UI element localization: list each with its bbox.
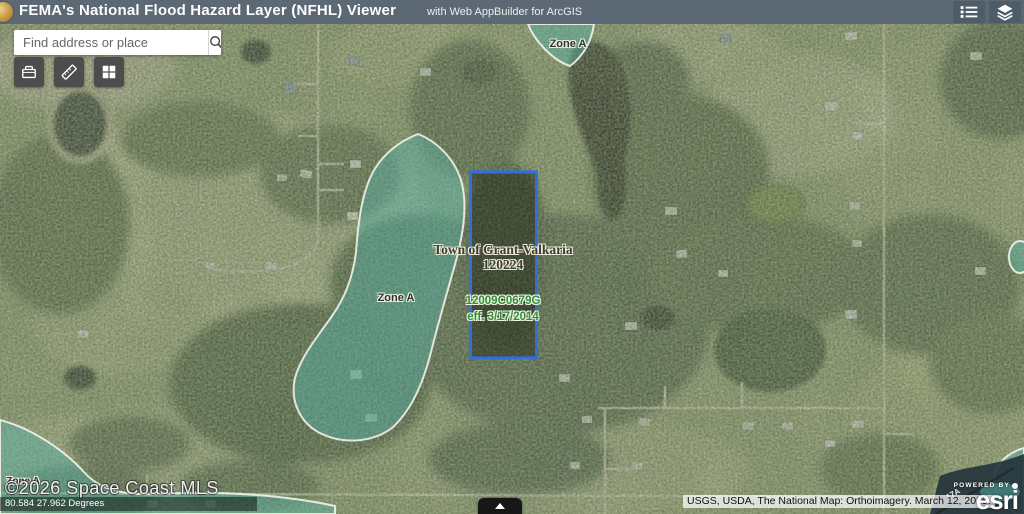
chevron-up-icon <box>495 503 505 509</box>
nfhl-viewer-app: 17A Zone A Zone A Zone A Town of Grant-V… <box>0 0 1024 514</box>
basemap-grid-button[interactable] <box>94 57 124 87</box>
parcel-town-label: Town of Grant-Valkaria 120224 <box>403 242 603 272</box>
page-title: FEMA's National Flood Hazard Layer (NFHL… <box>19 2 396 19</box>
map-attribution: USGS, USDA, The National Map: Orthoimage… <box>683 495 995 508</box>
ruler-icon <box>59 62 79 82</box>
search-icon <box>209 35 221 50</box>
app-logo <box>0 2 13 22</box>
search-button[interactable] <box>208 30 221 55</box>
attribute-table-toggle[interactable] <box>478 498 522 514</box>
town-number: 120224 <box>403 257 603 272</box>
firm-panel-number: 12009C0679G <box>423 295 583 307</box>
mls-watermark: ©2026 Space Coast MLS <box>5 478 219 499</box>
toolbox-icon <box>19 62 39 82</box>
map-toolbar <box>14 57 124 87</box>
esri-brand-text: esri <box>954 489 1018 511</box>
page-subtitle: with Web AppBuilder for ArcGIS <box>427 6 582 18</box>
legend-icon <box>959 4 979 20</box>
town-name: Town of Grant-Valkaria <box>403 242 603 257</box>
firm-effective-date: eff. 3/17/2014 <box>423 311 583 323</box>
legend-button[interactable] <box>953 1 985 23</box>
search-box <box>14 30 221 55</box>
toolbox-button[interactable] <box>14 57 44 87</box>
flood-zone-label-west: Zone A <box>368 292 424 304</box>
layers-button[interactable] <box>989 1 1021 23</box>
app-header: FEMA's National Flood Hazard Layer (NFHL… <box>0 0 1024 24</box>
layers-icon <box>995 3 1015 21</box>
esri-logo: POWERED BY esri <box>954 482 1018 511</box>
measure-button[interactable] <box>54 57 84 87</box>
coordinate-display: 80.584 27.962 Degrees <box>0 497 257 511</box>
map-canvas[interactable]: 17A Zone A Zone A Zone A Town of Grant-V… <box>0 24 1024 514</box>
search-input[interactable] <box>14 30 208 55</box>
flood-zone-label-top: Zone A <box>540 38 596 50</box>
grid-icon <box>99 62 119 82</box>
